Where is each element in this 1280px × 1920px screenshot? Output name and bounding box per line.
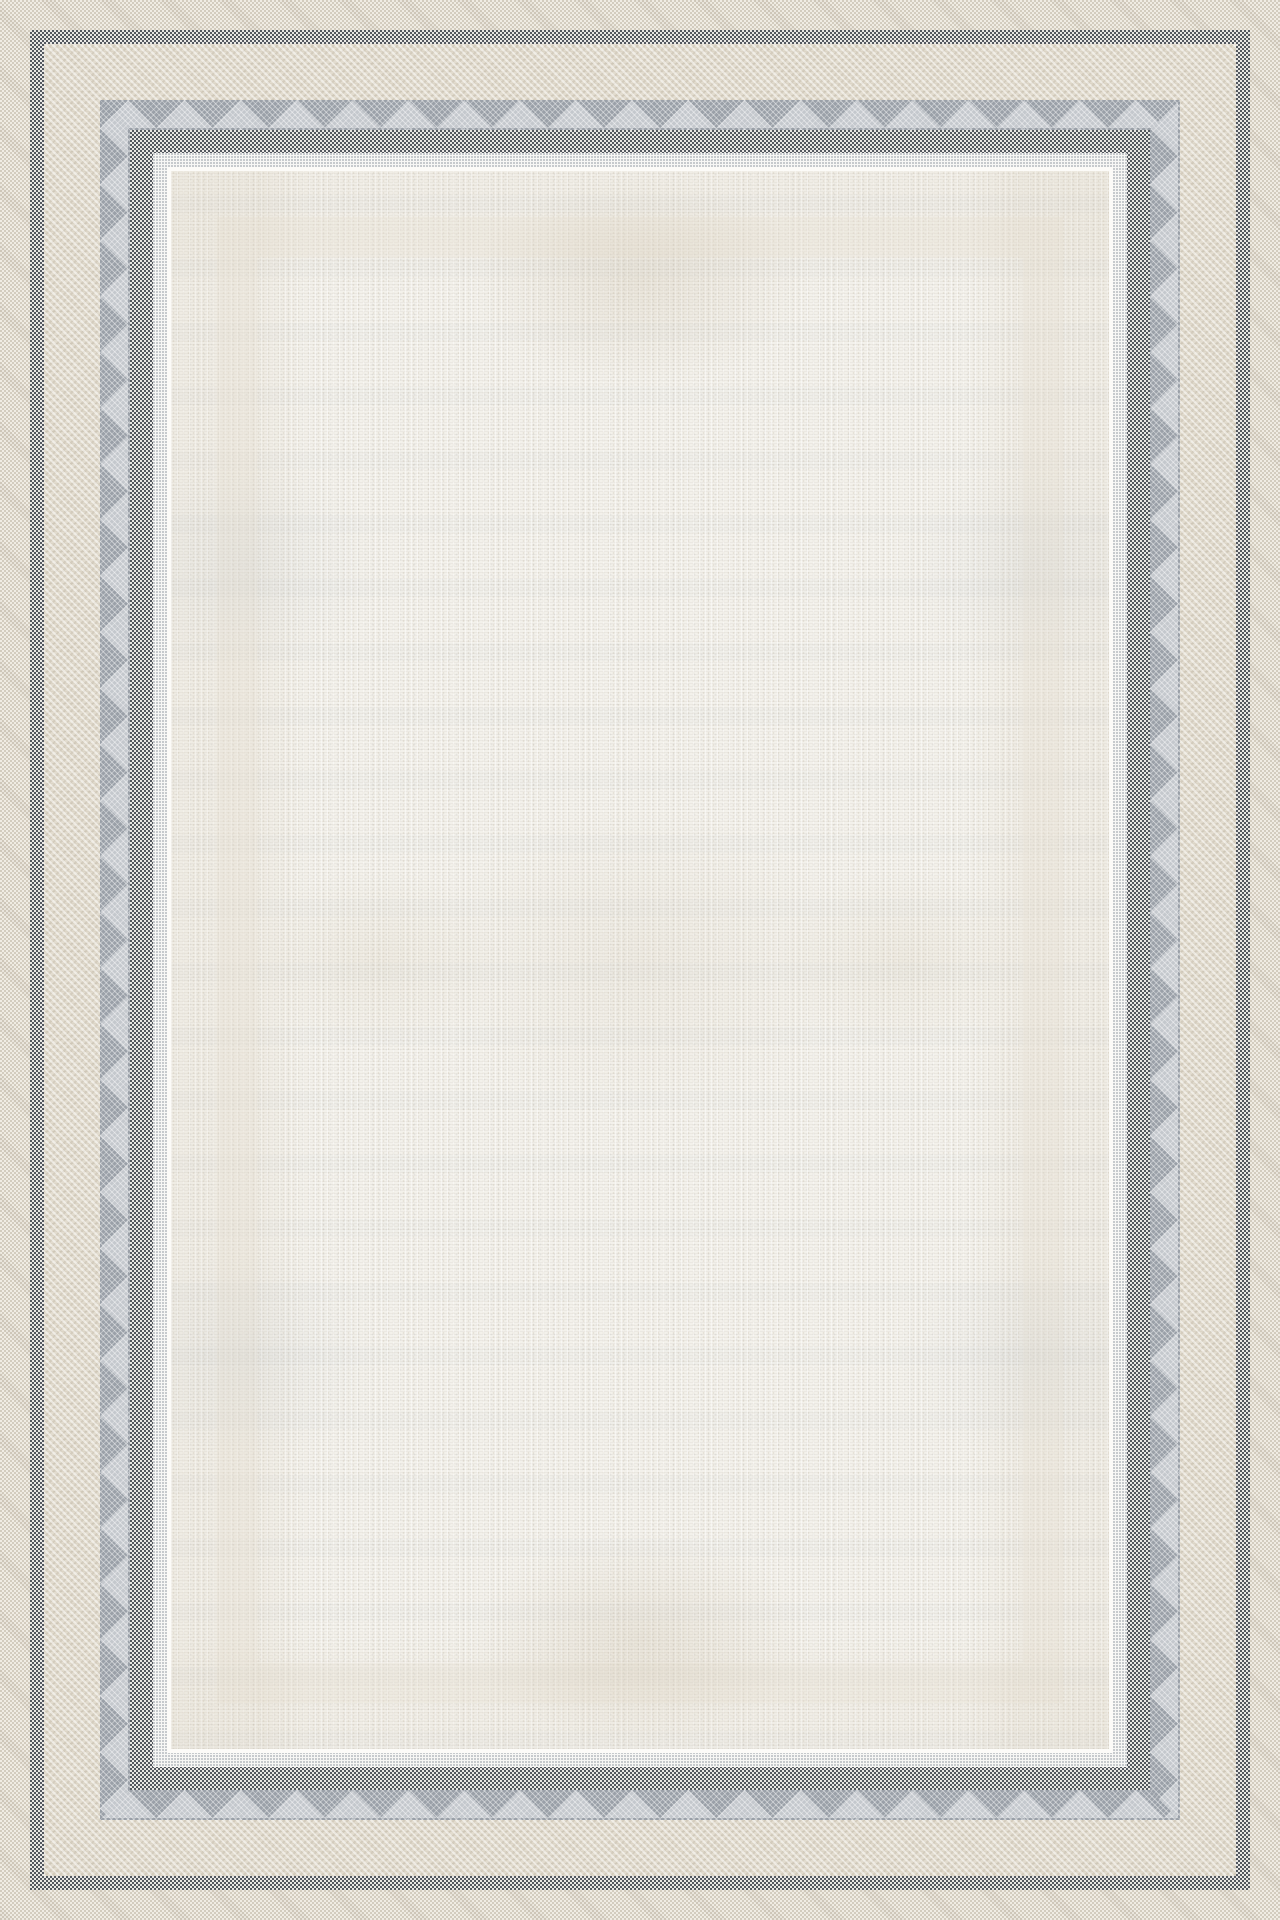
rug-field (171, 171, 1109, 1749)
rug-photo (0, 0, 1280, 1920)
chevron-band-bottom-segment (100, 1790, 1180, 1820)
chevron-band-right-segment (1150, 100, 1180, 1820)
chevron-band-top-segment (100, 100, 1180, 130)
chevron-band-left-segment (100, 100, 130, 1820)
rug-field-faded-motifs (171, 171, 1109, 1749)
